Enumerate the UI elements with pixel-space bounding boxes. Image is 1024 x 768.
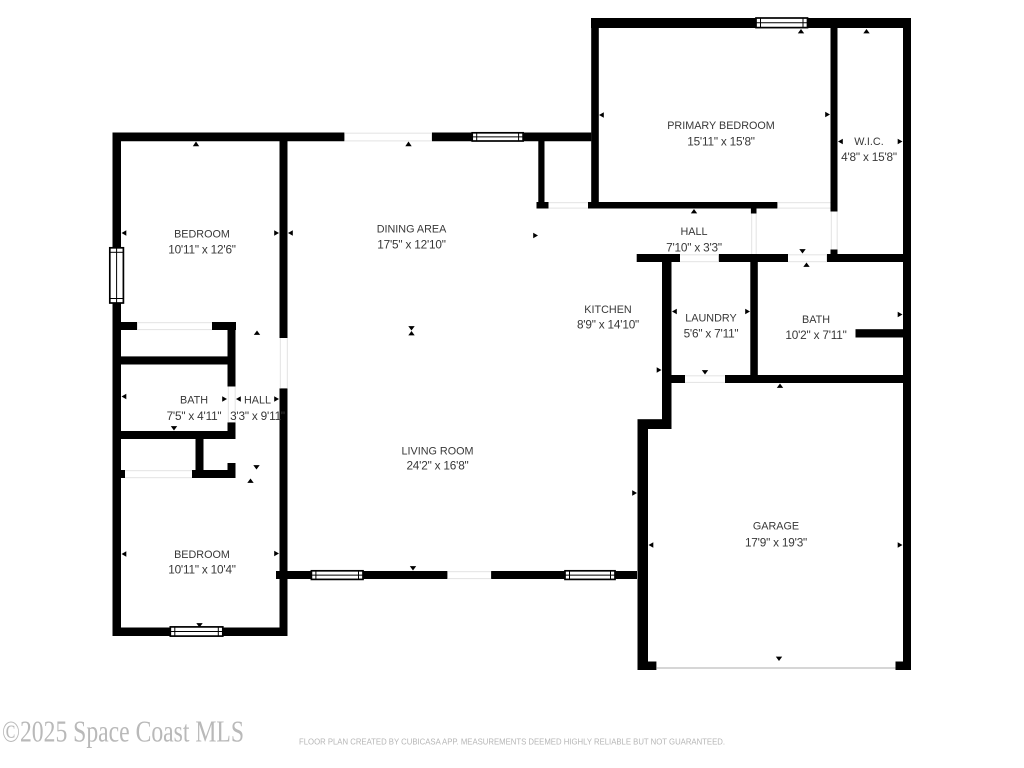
svg-text:BATH: BATH: [180, 395, 208, 407]
svg-text:HALL: HALL: [680, 226, 707, 238]
svg-text:15'11" x 15'8": 15'11" x 15'8": [687, 135, 755, 149]
svg-text:©2025 Space Coast MLS: ©2025 Space Coast MLS: [2, 714, 244, 749]
svg-text:4'8" x 15'8": 4'8" x 15'8": [841, 150, 897, 164]
svg-text:17'5" x 12'10": 17'5" x 12'10": [377, 238, 445, 252]
svg-text:GARAGE: GARAGE: [753, 521, 799, 533]
svg-text:17'9" x 19'3": 17'9" x 19'3": [745, 535, 807, 549]
svg-text:LIVING ROOM: LIVING ROOM: [402, 445, 474, 457]
svg-text:7'5" x 4'11": 7'5" x 4'11": [167, 409, 222, 423]
svg-text:10'11" x 12'6": 10'11" x 12'6": [168, 243, 236, 257]
svg-text:BEDROOM: BEDROOM: [174, 228, 230, 240]
svg-text:BEDROOM: BEDROOM: [174, 549, 230, 561]
svg-text:FLOOR PLAN CREATED BY CUBICASA: FLOOR PLAN CREATED BY CUBICASA APP. MEAS…: [299, 738, 725, 747]
svg-text:8'9" x 14'10": 8'9" x 14'10": [577, 318, 639, 332]
svg-text:5'6" x 7'11": 5'6" x 7'11": [684, 327, 739, 341]
svg-text:10'11" x 10'4": 10'11" x 10'4": [168, 563, 236, 577]
svg-text:PRIMARY BEDROOM: PRIMARY BEDROOM: [667, 120, 775, 132]
svg-text:DINING AREA: DINING AREA: [377, 224, 447, 236]
svg-text:24'2" x 16'8": 24'2" x 16'8": [406, 459, 468, 473]
svg-text:W.I.C.: W.I.C.: [854, 136, 883, 148]
svg-text:3'3" x 9'11": 3'3" x 9'11": [230, 409, 285, 423]
svg-text:BATH: BATH: [802, 314, 830, 326]
svg-text:HALL: HALL: [244, 395, 271, 407]
svg-text:KITCHEN: KITCHEN: [584, 304, 631, 316]
svg-text:7'10" x 3'3": 7'10" x 3'3": [666, 241, 722, 255]
svg-text:10'2" x 7'11": 10'2" x 7'11": [785, 328, 846, 342]
svg-text:LAUNDRY: LAUNDRY: [685, 313, 736, 325]
